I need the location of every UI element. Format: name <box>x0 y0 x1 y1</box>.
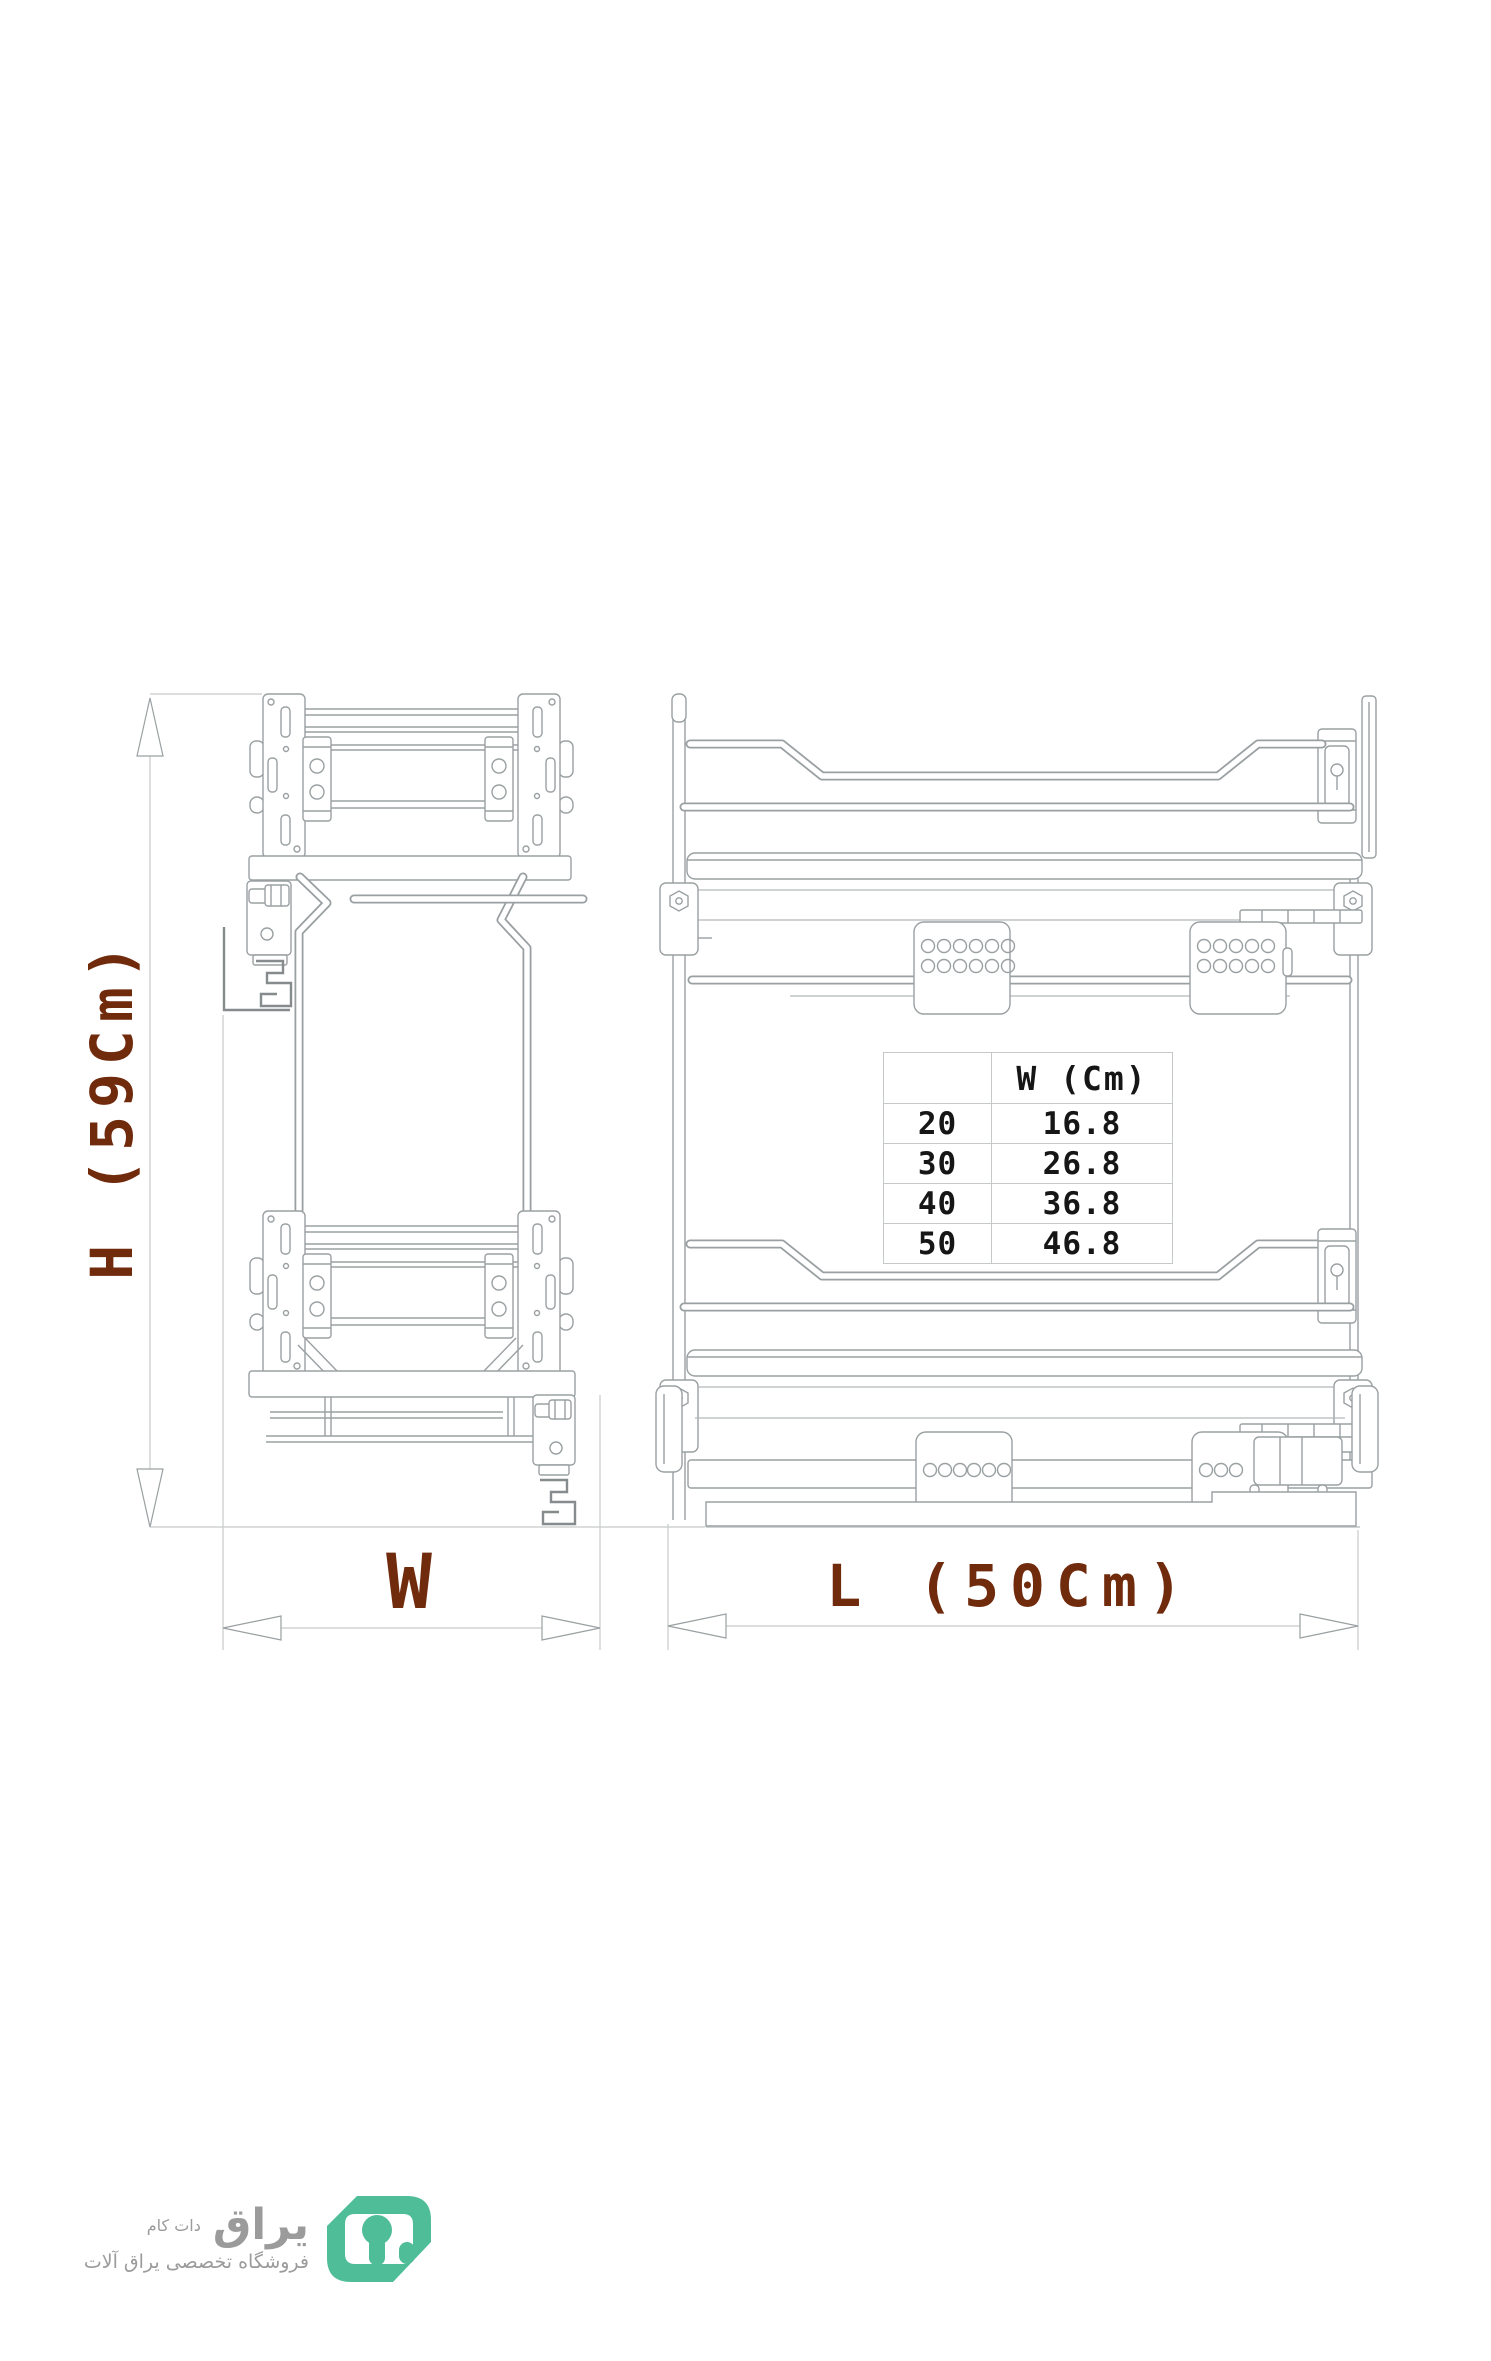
arrow-up-icon <box>137 698 163 756</box>
mounting-plate <box>263 1211 305 1375</box>
table-header-cell <box>884 1053 992 1104</box>
table-header-cell: W (Cm) <box>992 1053 1173 1104</box>
table-row: 30 26.8 <box>884 1144 1173 1184</box>
slide-plate <box>914 922 1015 1014</box>
end-bracket <box>1352 1386 1378 1472</box>
table-cell: 26.8 <box>992 1144 1173 1184</box>
arrow-left-icon <box>223 1616 281 1640</box>
rail-bracket <box>303 1254 331 1338</box>
table-row: 50 46.8 <box>884 1224 1173 1264</box>
width-dimension-label: W <box>309 1540 509 1624</box>
table-row: 40 36.8 <box>884 1184 1173 1224</box>
logo-brand-line: یراق دات کام <box>103 2204 309 2247</box>
table-cell: 30 <box>884 1144 992 1184</box>
arrow-right-icon <box>542 1616 600 1640</box>
arrow-down-icon <box>137 1469 163 1527</box>
table-cell: 36.8 <box>992 1184 1173 1224</box>
logo-text: یراق دات کام فروشگاه تخصصی یراق آلات <box>103 2204 309 2273</box>
front-bracket <box>533 1395 575 1475</box>
table-cell: 40 <box>884 1184 992 1224</box>
height-dimension-label: H (59Cm) <box>80 898 144 1318</box>
mounting-plate <box>263 694 305 858</box>
slide-plate <box>916 1432 1012 1510</box>
end-bracket <box>656 1386 682 1472</box>
table-cell: 50 <box>884 1224 992 1264</box>
table-row: 20 16.8 <box>884 1104 1173 1144</box>
logo-brand: یراق <box>213 2200 309 2250</box>
rail-bracket <box>303 737 331 821</box>
mounting-plate <box>518 1211 560 1375</box>
front-view-drawing <box>224 694 583 1524</box>
bolt-plate <box>660 883 712 955</box>
keyhole-logo-icon <box>321 2190 437 2288</box>
logo-suffix: دات کام <box>147 2216 201 2235</box>
yaragh-logo: یراق دات کام فروشگاه تخصصی یراق آلات <box>103 2190 437 2292</box>
rail-bracket <box>485 737 513 821</box>
width-size-table: W (Cm) 20 16.8 30 26.8 40 36.8 50 46.8 <box>883 1052 1173 1264</box>
front-bracket <box>247 881 291 965</box>
logo-tagline: فروشگاه تخصصی یراق آلات <box>103 2251 309 2273</box>
page: H (59Cm) W L (50Cm) W (Cm) 20 16.8 30 26… <box>0 0 1491 2361</box>
mounting-plate <box>518 694 560 858</box>
h-dimension <box>137 694 705 1527</box>
table-cell: 46.8 <box>992 1224 1173 1264</box>
rail-bracket <box>485 1254 513 1338</box>
table-cell: 16.8 <box>992 1104 1173 1144</box>
table-header-row: W (Cm) <box>884 1053 1173 1104</box>
table-cell: 20 <box>884 1104 992 1144</box>
technical-drawing <box>0 0 1491 2361</box>
length-dimension-label: L (50Cm) <box>710 1548 1310 1624</box>
